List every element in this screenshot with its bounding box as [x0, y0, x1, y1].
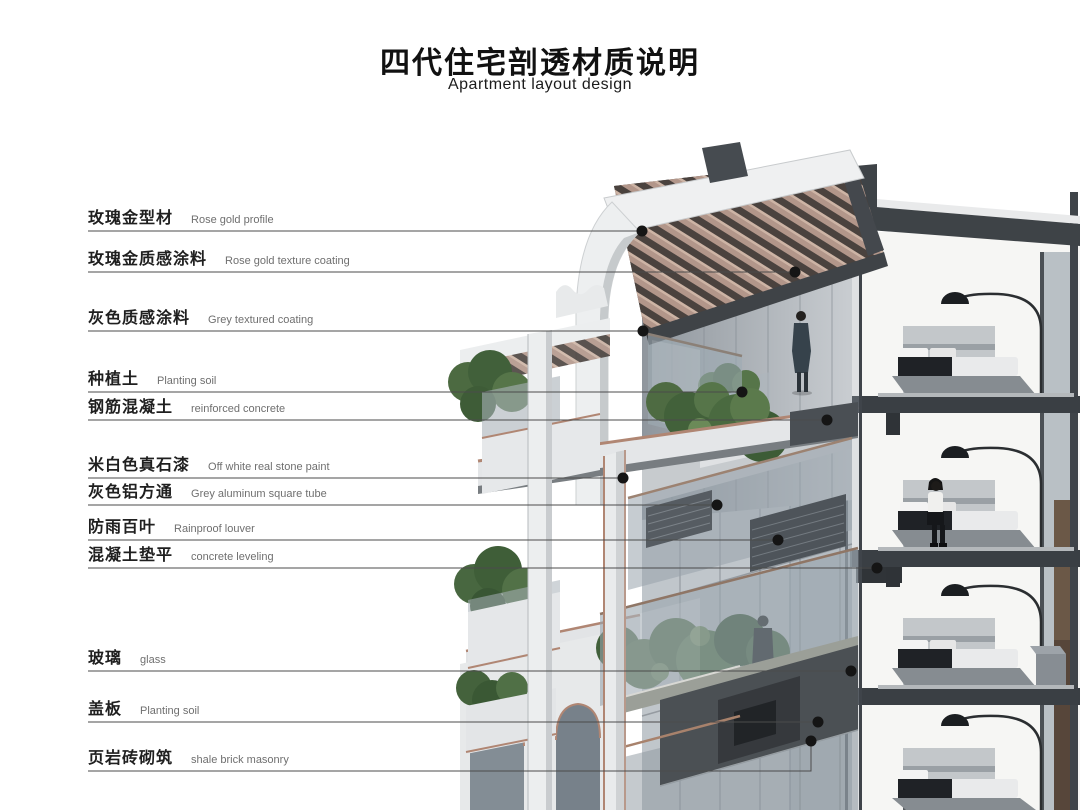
poster-canvas: 四代住宅剖透材质说明 Apartment layout design 玫瑰金型材… [0, 0, 1080, 810]
roof-cap [702, 142, 748, 183]
building-illustration [0, 0, 1080, 810]
